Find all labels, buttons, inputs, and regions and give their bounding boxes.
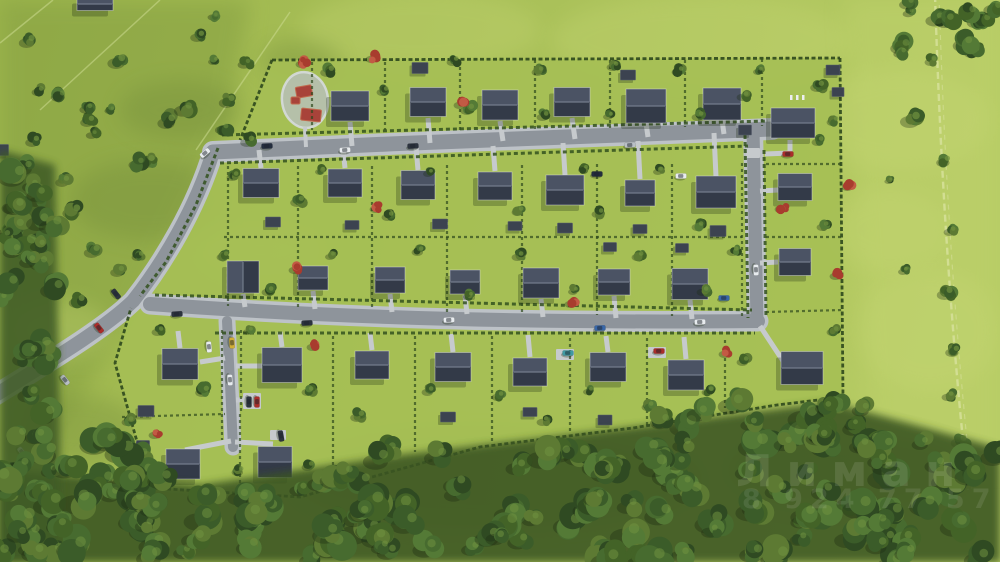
house (620, 180, 655, 212)
tree (925, 53, 938, 67)
garden-shed (676, 244, 689, 253)
play-equipment (295, 85, 313, 99)
sun-lounger (790, 95, 793, 100)
aerial-masterplan-render: Лиман 8 924 77 57 (0, 0, 1000, 562)
garden-shed (345, 221, 359, 230)
driveway (235, 442, 273, 444)
house (430, 353, 471, 388)
garden-shed (826, 65, 840, 75)
house (774, 249, 811, 282)
garden-shed (558, 223, 573, 233)
car-teal (561, 350, 574, 357)
sun-lounger (796, 95, 799, 100)
driveway (178, 331, 180, 348)
house (445, 270, 480, 300)
garden-shed (633, 225, 647, 234)
house (518, 268, 559, 304)
garden-shed (604, 243, 617, 252)
forest-tree (51, 455, 88, 479)
garden-shed (621, 70, 636, 80)
house (350, 351, 389, 385)
driveway (638, 141, 640, 179)
play-equipment (291, 97, 300, 104)
driveway (416, 147, 418, 170)
garden-shed (138, 406, 154, 417)
house (222, 261, 259, 299)
car-dark (244, 395, 251, 408)
driveway (259, 150, 261, 168)
garden-shed (832, 88, 844, 97)
house (776, 352, 823, 391)
driveway (370, 333, 372, 350)
driveway (493, 146, 495, 171)
garden-shed (710, 226, 726, 237)
house (621, 89, 666, 129)
house (585, 353, 626, 388)
driveway (684, 337, 686, 359)
garden-shed (433, 219, 448, 229)
house (238, 169, 279, 204)
house (698, 88, 741, 126)
driveway (714, 133, 716, 177)
house (72, 0, 113, 17)
car-red (652, 348, 665, 355)
car-white (674, 173, 687, 180)
house (405, 88, 446, 123)
aerial-scene-svg (0, 0, 1000, 562)
house (593, 269, 630, 301)
driveway (606, 336, 608, 352)
house (508, 358, 547, 392)
driveway (451, 334, 453, 352)
house (477, 90, 518, 126)
sun-lounger (802, 95, 805, 100)
house (541, 175, 584, 211)
garden-shed (412, 63, 428, 74)
house (323, 169, 362, 203)
house (766, 108, 815, 144)
garden-shed (508, 222, 522, 231)
parking-pad (746, 148, 760, 158)
house (370, 267, 405, 299)
car-blue (717, 295, 730, 302)
house (326, 91, 369, 127)
house (773, 174, 812, 207)
house (549, 88, 590, 123)
house (663, 360, 704, 396)
house (691, 176, 736, 214)
driveway (528, 335, 530, 357)
garden-shed (598, 415, 612, 425)
house (157, 349, 198, 386)
garden-shed (739, 125, 752, 135)
car-navy (590, 171, 603, 178)
house (473, 172, 512, 206)
driveway (563, 143, 565, 175)
forest-tree (650, 406, 674, 429)
house (257, 348, 302, 389)
garden-shed (441, 412, 456, 422)
car-red (781, 151, 794, 158)
car-red (252, 395, 259, 408)
garden-shed (523, 408, 537, 417)
garden-shed (266, 217, 281, 227)
